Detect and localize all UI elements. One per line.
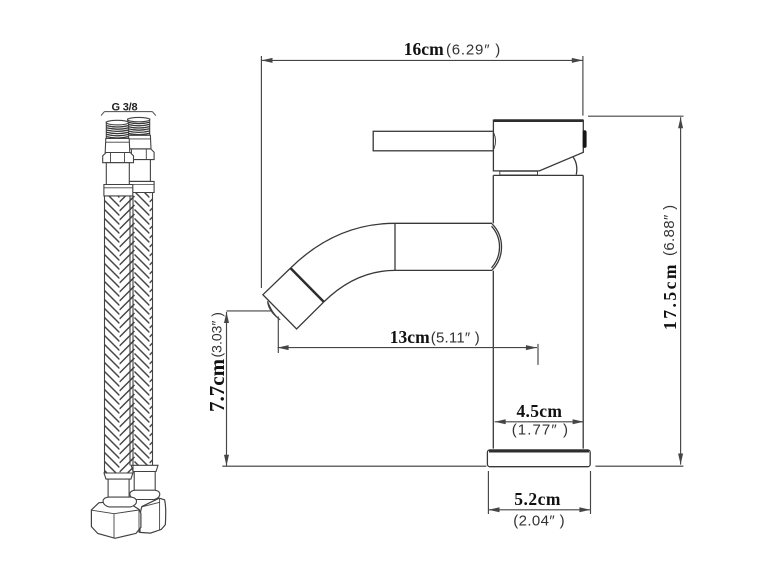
svg-text:13cm: 13cm — [390, 327, 430, 347]
svg-text:(5.11″ ): (5.11″ ) — [431, 330, 480, 347]
svg-text:(1.77″ ): (1.77″ ) — [512, 422, 569, 439]
svg-text:16cm: 16cm — [404, 39, 444, 59]
svg-text:G 3/8: G 3/8 — [112, 101, 138, 113]
svg-text:17.5cm: 17.5cm — [660, 262, 680, 330]
svg-text:(6.29″ ): (6.29″ ) — [446, 42, 501, 59]
svg-text:(6.88″ ): (6.88″ ) — [661, 205, 678, 256]
svg-text:7.7cm: 7.7cm — [205, 358, 229, 412]
svg-text:4.5cm: 4.5cm — [517, 401, 563, 421]
svg-text:(2.04″ ): (2.04″ ) — [513, 513, 565, 530]
svg-text:(3.03″ ): (3.03″ ) — [209, 312, 225, 357]
svg-text:5.2cm: 5.2cm — [514, 489, 561, 509]
